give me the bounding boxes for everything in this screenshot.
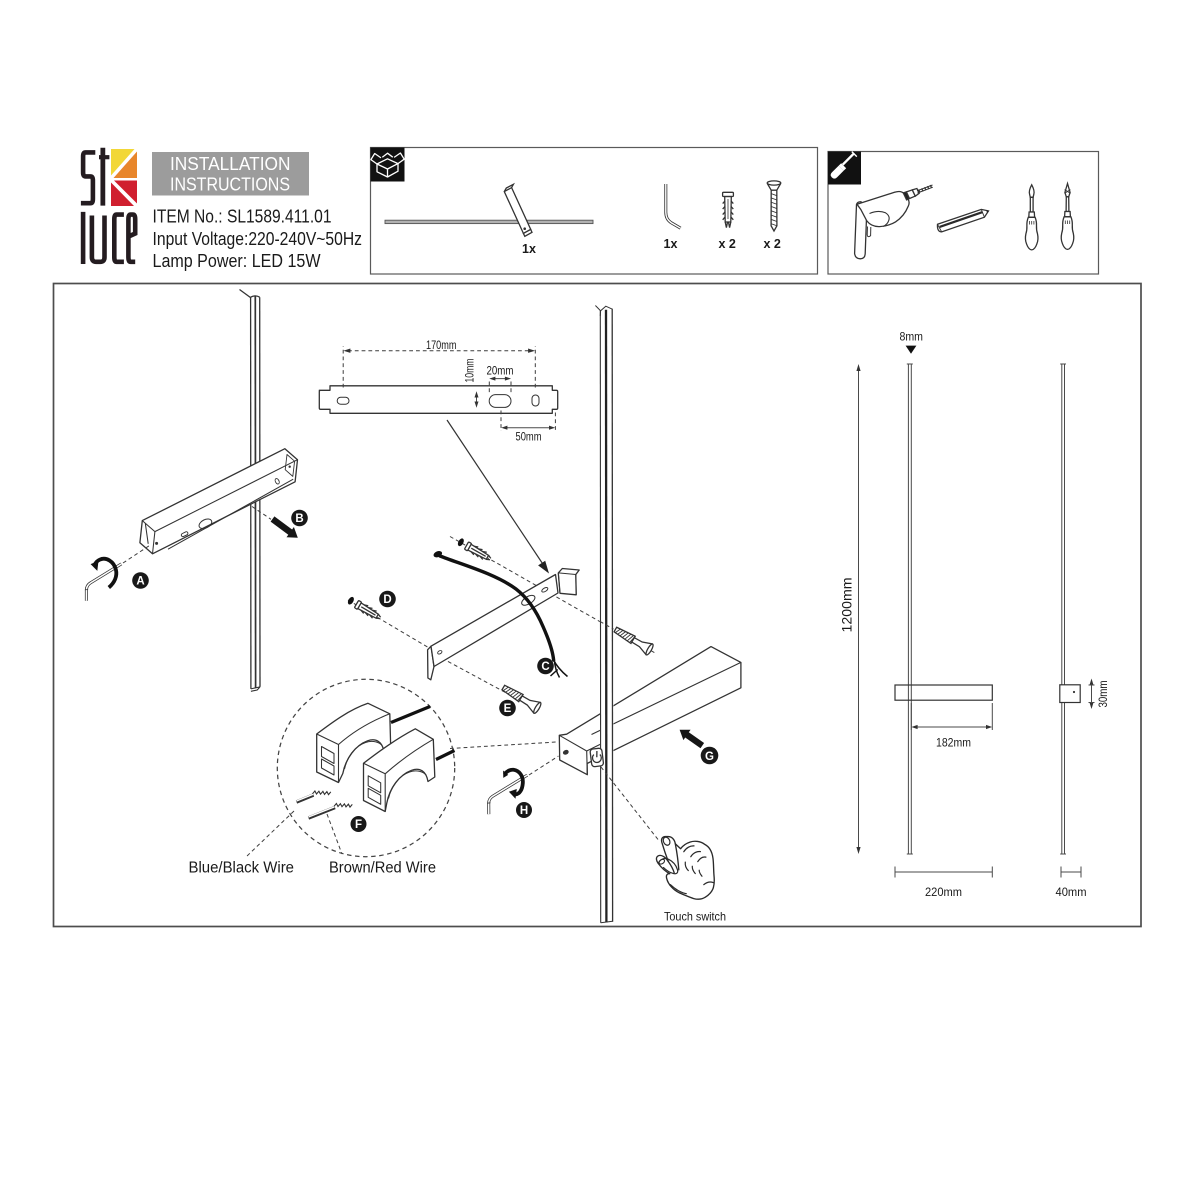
svg-text:Touch switch: Touch switch <box>664 910 726 924</box>
svg-text:C: C <box>541 661 549 673</box>
svg-text:Lamp Power: LED 15W: Lamp Power: LED 15W <box>153 251 321 271</box>
svg-text:x 2: x 2 <box>719 237 736 251</box>
svg-text:D: D <box>383 594 391 606</box>
svg-text:G: G <box>705 751 714 763</box>
svg-text:30mm: 30mm <box>1096 681 1110 708</box>
svg-text:40mm: 40mm <box>1056 885 1087 899</box>
svg-text:A: A <box>136 576 144 588</box>
svg-text:20mm: 20mm <box>487 364 514 378</box>
svg-text:170mm: 170mm <box>426 338 457 352</box>
svg-text:INSTALLATION: INSTALLATION <box>170 153 291 174</box>
svg-text:ITEM No.: SL1589.411.01: ITEM No.: SL1589.411.01 <box>153 207 332 227</box>
svg-text:50mm: 50mm <box>516 430 542 444</box>
svg-text:1200mm: 1200mm <box>840 578 855 633</box>
svg-text:H: H <box>520 805 528 817</box>
svg-text:INSTRUCTIONS: INSTRUCTIONS <box>170 174 290 195</box>
svg-text:F: F <box>355 819 362 831</box>
svg-text:1x: 1x <box>522 242 536 256</box>
svg-text:182mm: 182mm <box>936 736 971 750</box>
svg-text:8mm: 8mm <box>900 332 924 344</box>
svg-text:220mm: 220mm <box>925 885 962 899</box>
svg-text:Brown/Red Wire: Brown/Red Wire <box>329 860 436 877</box>
svg-text:1x: 1x <box>664 237 678 251</box>
svg-text:B: B <box>295 513 303 525</box>
svg-text:10mm: 10mm <box>463 359 477 383</box>
svg-text:x 2: x 2 <box>764 237 781 251</box>
svg-text:Input Voltage:220-240V~50Hz: Input Voltage:220-240V~50Hz <box>153 229 363 249</box>
svg-text:Blue/Black Wire: Blue/Black Wire <box>189 860 295 877</box>
svg-text:E: E <box>504 703 512 715</box>
